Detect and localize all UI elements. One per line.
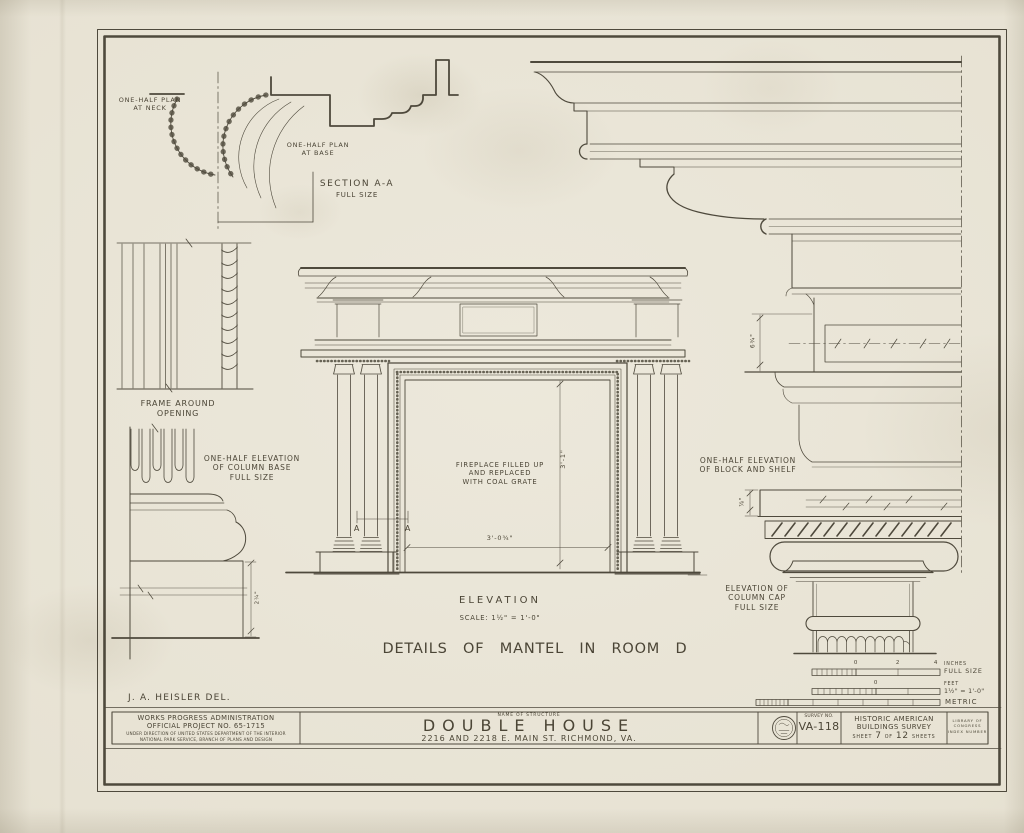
block-and-shelf-detail: [745, 294, 961, 571]
loc-index-label: LIBRARY OF CONGRESS INDEX NUMBER: [947, 718, 988, 734]
pedestal-right: [615, 552, 700, 574]
titleblock-wpa-line3: UNDER DIRECTION OF UNITED STATES DEPARTM…: [112, 731, 300, 736]
pedestal-left: [314, 552, 399, 574]
scale1-tick-2: 2: [892, 660, 904, 667]
section-marker-a-right: A: [402, 524, 414, 534]
nps-seal-icon: [773, 717, 796, 740]
label-plan-at-base: ONE-HALF PLAN AT BASE: [284, 141, 352, 157]
label-block-and-shelf: ONE-HALF ELEVATION OF BLOCK AND SHELF: [692, 456, 804, 475]
label-plan-at-neck: ONE-HALF PLAN AT NECK: [116, 96, 184, 112]
sheet: ONE-HALF PLAN AT NECK ONE-HALF PLAN AT B…: [0, 0, 1024, 833]
sheet-of-word: OF: [885, 735, 893, 741]
dim-opening-width: 3'-0¾": [450, 534, 550, 542]
dim-opening-height: 3'-1": [559, 439, 567, 479]
shelf-board: [758, 490, 961, 517]
delineator-credit: J. A. HEISLER DEL.: [128, 693, 288, 704]
scale2-label: 1½" = 1'-0": [944, 688, 1000, 696]
frame-around-opening-detail: [117, 239, 253, 392]
sheet-title: DETAILS OF MANTEL IN ROOM D: [295, 640, 775, 658]
astragal: [806, 617, 920, 631]
label-elevation: ELEVATION: [440, 595, 560, 608]
shelf-brackets: [318, 277, 668, 297]
label-section-aa-scale: FULL SIZE: [316, 191, 398, 200]
scale2-tick-0: 0: [870, 680, 882, 687]
flutes: [131, 429, 194, 483]
dim-frieze-height: 6¾": [749, 321, 757, 361]
frieze-end-block-right: [632, 300, 682, 337]
sheet-word: SHEET: [853, 735, 873, 741]
habs-sheet-line: SHEET 7 OF 12 SHEETS: [841, 731, 947, 742]
sheets-word: SHEETS: [912, 735, 936, 741]
titleblock-wpa-line2: OFFICIAL PROJECT NO. 65-1715: [112, 722, 300, 730]
scale-bars: [756, 669, 940, 706]
scale1-label: FULL SIZE: [944, 668, 996, 676]
titleblock-wpa-line4: NATIONAL PARK SERVICE, BRANCH OF PLANS A…: [112, 737, 300, 742]
section-marker-a-left: A: [351, 524, 363, 534]
survey-no-label: SURVEY NO.: [797, 714, 841, 720]
shelf-cornice-profile: [531, 56, 962, 576]
structure-address: 2216 AND 2218 E. MAIN ST. RICHMOND, VA.: [300, 734, 758, 744]
scale3-label: METRIC: [945, 698, 995, 707]
dim-shelf-thickness: ⅞": [738, 482, 746, 522]
sheet-number: 7: [875, 731, 882, 742]
flute-arches: [818, 637, 910, 652]
label-frame-around-opening: FRAME AROUND OPENING: [128, 399, 228, 419]
label-fireplace-note: FIREPLACE FILLED UP AND REPLACED WITH CO…: [446, 461, 554, 486]
scale1-tick-0: 0: [850, 660, 862, 667]
frieze-end-block-left: [333, 300, 383, 337]
survey-no: VA-118: [797, 720, 841, 734]
frieze-center-panel: [460, 304, 537, 336]
scale1-tick-4: 4: [930, 660, 942, 667]
mantel-elevation: [286, 268, 700, 574]
label-section-aa: SECTION A-A: [316, 179, 398, 190]
rope-molding: [222, 247, 238, 369]
sheet-total: 12: [896, 731, 909, 742]
bolster: [770, 542, 958, 571]
label-column-base: ONE-HALF ELEVATION OF COLUMN BASE FULL S…: [194, 454, 310, 482]
scale-bar-metric: [756, 700, 940, 706]
dim-plinth-height: 2¼": [255, 577, 262, 617]
scale-bar-fullsize: [812, 669, 940, 676]
label-elevation-scale: SCALE: 1½" = 1'-0": [440, 614, 560, 622]
inner-border: [105, 37, 1000, 785]
label-column-cap: ELEVATION OF COLUMN CAP FULL SIZE: [712, 584, 802, 612]
